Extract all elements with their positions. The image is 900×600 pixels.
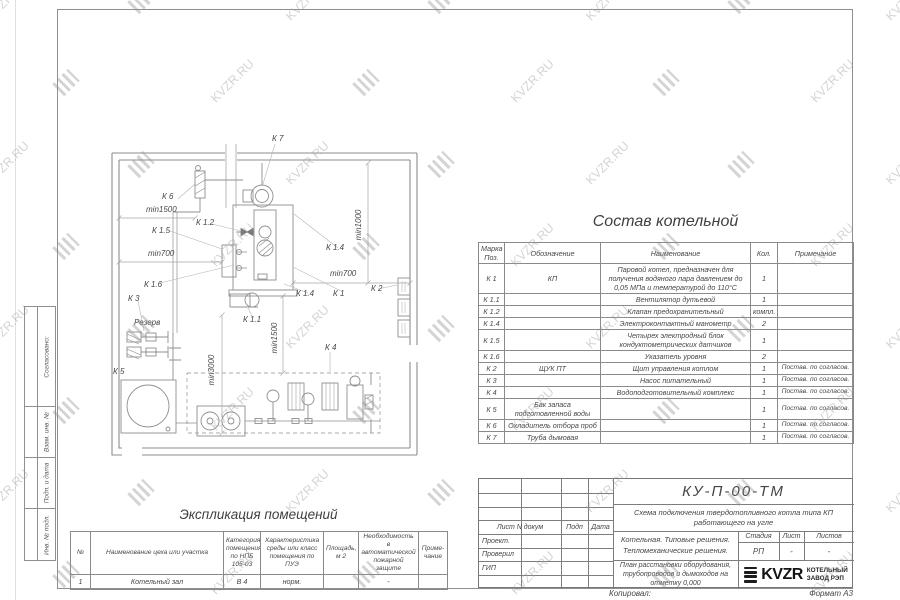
kvzr-logo-icon: [744, 567, 757, 583]
cell-name: [601, 420, 751, 432]
cell-qty: 2: [751, 351, 778, 363]
chimney-k7: [243, 163, 273, 207]
cell-name: Электроконтактный манометр: [601, 318, 751, 330]
cell-oboz: Труба дымовая: [505, 432, 601, 444]
table-header-row: Марка Поз. Обозначение Наименование Кол.…: [479, 243, 854, 264]
cell-pos: К 4: [479, 387, 505, 399]
cell-pos: К 1.4: [479, 318, 505, 330]
cell-room: Котельный зал: [91, 574, 224, 589]
cell-oboz: [505, 294, 601, 306]
col-header-area: Площадь, м 2: [324, 532, 359, 575]
cell-note: Постав. по согласов.: [778, 399, 854, 420]
label-min1500a: min1500: [146, 205, 177, 214]
label-k2: К 2: [371, 284, 383, 293]
cell-oboz: [505, 387, 601, 399]
sheet-label: Лист: [779, 531, 804, 542]
expl-header: № Наименование цеха или участка Категори…: [71, 532, 448, 575]
sample-cooler-k6: [173, 166, 243, 334]
label-k7: К 7: [272, 134, 284, 143]
sheets-label: Листов: [804, 531, 854, 542]
table-row: 1 Котельный зал В 4 норм. -: [71, 574, 448, 589]
cell-qty: 1: [751, 294, 778, 306]
col-header-note: Приме-чание: [419, 532, 448, 575]
table-row: К 4Водоподготовительный комплекс1Постав.…: [479, 387, 854, 399]
table-row: К 1.2Клапан предохранительныйкомпл.: [479, 306, 854, 318]
expl-body: 1 Котельный зал В 4 норм. -: [71, 574, 448, 589]
plan-walls: [112, 153, 417, 455]
cell-qty: 1: [751, 432, 778, 444]
col-header-qty: Кол.: [751, 243, 778, 264]
sheets-value: -: [804, 542, 854, 560]
cell-note: Постав. по согласов.: [778, 363, 854, 375]
cell-note: [778, 306, 854, 318]
tb-line: [479, 493, 613, 494]
cell-oboz: [505, 351, 601, 363]
cell-qty: 1: [751, 399, 778, 420]
feed-pumps-k3: [127, 331, 181, 380]
label-k15: К 1.5: [152, 226, 171, 235]
blower-fan-k11: [230, 293, 259, 307]
label-rezerv: Резерв: [134, 318, 160, 327]
margin-box-podp: Подп. и дата: [24, 457, 56, 509]
cell-area: [324, 574, 359, 589]
cell-note: [778, 318, 854, 330]
expl-table: № Наименование цеха или участка Категори…: [70, 531, 448, 590]
cell-name: Насос питательный: [601, 375, 751, 387]
cell-qty: 2: [751, 318, 778, 330]
company-name: КОТЕЛЬНЫЙ ЗАВОД РЭП: [807, 567, 848, 583]
margin-label-podp: Подп. и дата: [44, 463, 51, 504]
cell-note: [778, 294, 854, 306]
cell-name: Паровой котел, предназначен для получени…: [601, 264, 751, 294]
cell-note: [778, 351, 854, 363]
tb-col-date: Дата: [588, 520, 613, 534]
cell-note: Постав. по согласов.: [778, 432, 854, 444]
cell-name: Клапан предохранительный: [601, 306, 751, 318]
cell-num: 1: [71, 574, 91, 589]
cell-qty: 1: [751, 330, 778, 351]
col-header-num: №: [71, 532, 91, 575]
cell-oboz: КП: [505, 264, 601, 294]
sostav-body: К 1КППаровой котел, предназначен для пол…: [479, 264, 854, 444]
cell-name: Водоподготовительный комплекс: [601, 387, 751, 399]
kvzr-logo-text: KVZR: [761, 566, 803, 584]
company-block: KVZR КОТЕЛЬНЫЙ ЗАВОД РЭП: [738, 560, 854, 589]
margin-box-agreed: Согласовано:: [24, 306, 56, 407]
cell-class: норм.: [261, 574, 324, 589]
sheet-name: План расстановки оборудования, трубопров…: [613, 560, 738, 589]
label-min700b: min700: [330, 269, 357, 278]
watermark-text: KVZR.RU: [883, 303, 900, 352]
col-header-room: Наименование цеха или участка: [91, 532, 224, 575]
label-min1500b: min1500: [270, 322, 279, 353]
cell-pos: К 7: [479, 432, 505, 444]
watermark-text: KVZR.RU: [883, 467, 900, 516]
col-header-oboz: Обозначение: [505, 243, 601, 264]
cell-pos: К 1.2: [479, 306, 505, 318]
document-number: КУ-П-00-ТМ: [613, 479, 854, 504]
sostav-header: Марка Поз. Обозначение Наименование Кол.…: [479, 243, 854, 264]
table-row: К 2ЩУК ПТЩит управления котлом1Постав. п…: [479, 363, 854, 375]
cell-qty: 1: [751, 264, 778, 294]
floor-plan: К 7 К 6 min1500 К 1.5 К 1.2 min700 К 1.6…: [100, 125, 452, 473]
cell-name: Указатель уровня: [601, 351, 751, 363]
sostav-table: Марка Поз. Обозначение Наименование Кол.…: [478, 242, 854, 444]
company-name-line1: КОТЕЛЬНЫЙ: [807, 567, 848, 574]
label-k14a: К 1.4: [326, 243, 345, 252]
cell-qty: 1: [751, 420, 778, 432]
watermark-text: KVZR.RU: [883, 139, 900, 188]
table-row: К 1.1Вентилятор дутьевой1: [479, 294, 854, 306]
expl-title: Экспликация помещений: [70, 507, 447, 522]
table-row: К 5Бак запаса подготовленной воды1Постав…: [479, 399, 854, 420]
copied-label: Копировал:: [585, 589, 675, 598]
margin-label-vzam: Взам. инв. №: [44, 412, 51, 452]
margin-boxes: Согласовано: Взам. инв. № Подп. и дата И…: [24, 307, 56, 561]
label-min1000: min1000: [354, 209, 363, 240]
tb-role-project: Проект.: [479, 534, 521, 548]
cell-pos: К 3: [479, 375, 505, 387]
cell-oboz: [505, 330, 601, 351]
cell-qty: 1: [751, 375, 778, 387]
stage-label: Стадия: [738, 531, 779, 542]
cell-qty: 1: [751, 363, 778, 375]
cell-pos: К 6: [479, 420, 505, 432]
cell-oboz: [505, 375, 601, 387]
control-panels-k2: [398, 278, 410, 337]
cell-pos: К 1.5: [479, 330, 505, 351]
duct-wall-opening: [225, 150, 237, 163]
col-header-category: Категория помещения по НПБ 105-03: [224, 532, 261, 575]
label-min3000: min3000: [207, 354, 216, 385]
label-k5: К 5: [113, 367, 125, 376]
label-k11: К 1.1: [243, 315, 261, 324]
label-k3: К 3: [128, 294, 140, 303]
col-header-class: Характеристика среды или класс помещения…: [261, 532, 324, 575]
cell-note: Постав. по согласов.: [778, 387, 854, 399]
label-min700a: min700: [148, 249, 175, 258]
drawing-sheet: { "watermark": { "text": "KVZR.RU" }, "p…: [0, 0, 900, 600]
tb-role-gip: ГИП: [479, 561, 521, 575]
cell-pos: К 1.6: [479, 351, 505, 363]
cell-pos: К 5: [479, 399, 505, 420]
cell-name: Четырех электродный блок кондуктометриче…: [601, 330, 751, 351]
format-label: Формат А3: [770, 589, 853, 598]
cell-pos: К 2: [479, 363, 505, 375]
cell-qty: 1: [751, 387, 778, 399]
margin-box-inv: Инв. № подл.: [24, 508, 56, 561]
cell-category: В 4: [224, 574, 261, 589]
col-header-pos: Марка Поз.: [479, 243, 505, 264]
tb-line: [479, 507, 613, 508]
safety-valve-k12: [236, 229, 254, 236]
document-subtitle: Схема подключения твердотопливного котла…: [613, 504, 854, 531]
tb-col-doc: Лист N докум: [479, 520, 561, 534]
cell-note: Постав. по согласов.: [778, 420, 854, 432]
margin-box-divider: [37, 509, 38, 560]
stage-value: РП: [738, 542, 779, 560]
table-row: К 1КППаровой котел, предназначен для пол…: [479, 264, 854, 294]
cell-qty: компл.: [751, 306, 778, 318]
boiler-k1: [229, 205, 297, 296]
cell-note: [778, 330, 854, 351]
sheet-left-edge: [15, 0, 16, 600]
margin-label-agreed: Согласовано:: [44, 336, 51, 377]
cell-note: [419, 574, 448, 589]
margin-box-vzam: Взам. инв. №: [24, 406, 56, 458]
level-block-k15-k16: [222, 245, 247, 277]
cell-oboz: [505, 306, 601, 318]
tb-role-checked: Проверил: [479, 548, 521, 561]
tb-col-sign: Подп: [561, 520, 588, 534]
col-header-name: Наименование: [601, 243, 751, 264]
object-name: Котельная. Типовые решения. Тепломеханич…: [613, 531, 738, 560]
margin-box-divider: [37, 307, 38, 406]
cell-name: [601, 399, 751, 420]
table-row: К 6Охладитель отбора проб1Постав. по сог…: [479, 420, 854, 432]
margin-box-divider: [37, 407, 38, 457]
cell-oboz: Охладитель отбора проб: [505, 420, 601, 432]
table-header-row: № Наименование цеха или участка Категори…: [71, 532, 448, 575]
cell-name: Вентилятор дутьевой: [601, 294, 751, 306]
table-row: К 3Насос питательный1Постав. по согласов…: [479, 375, 854, 387]
label-k14b: К 1.4: [296, 289, 315, 298]
cell-name: [601, 432, 751, 444]
col-header-note: Примечание: [778, 243, 854, 264]
margin-box-divider: [37, 458, 38, 508]
water-tank-k5: [121, 380, 176, 433]
cell-oboz: ЩУК ПТ: [505, 363, 601, 375]
sheet-value: -: [779, 542, 804, 560]
label-k6: К 6: [162, 192, 174, 201]
table-row: К 1.5Четырех электродный блок кондуктоме…: [479, 330, 854, 351]
company-name-line2: ЗАВОД РЭП: [807, 575, 844, 582]
col-header-fire: Необходимость в автоматической пожарной …: [359, 532, 419, 575]
cell-oboz: Бак запаса подготовленной воды: [505, 399, 601, 420]
watermark-text: KVZR.RU: [883, 0, 900, 23]
cell-pos: К 1: [479, 264, 505, 294]
title-block: Лист N докум Подп Дата Проект. Проверил …: [478, 478, 853, 588]
cell-pos: К 1.1: [479, 294, 505, 306]
cell-oboz: [505, 318, 601, 330]
table-row: К 1.4Электроконтактный манометр2: [479, 318, 854, 330]
tb-line: [479, 575, 613, 576]
label-k16: К 1.6: [144, 280, 163, 289]
cell-fire: -: [359, 574, 419, 589]
table-row: К 7Труба дымовая1Постав. по согласов.: [479, 432, 854, 444]
cell-note: [778, 264, 854, 294]
table-row: К 1.6Указатель уровня2: [479, 351, 854, 363]
sostav-title: Состав котельной: [478, 213, 853, 231]
label-k4: К 4: [325, 343, 337, 352]
label-k1: К 1: [333, 289, 344, 298]
label-k12: К 1.2: [196, 218, 215, 227]
margin-label-inv: Инв. № подл.: [44, 514, 51, 554]
cell-note: Постав. по согласов.: [778, 375, 854, 387]
cell-name: Щит управления котлом: [601, 363, 751, 375]
